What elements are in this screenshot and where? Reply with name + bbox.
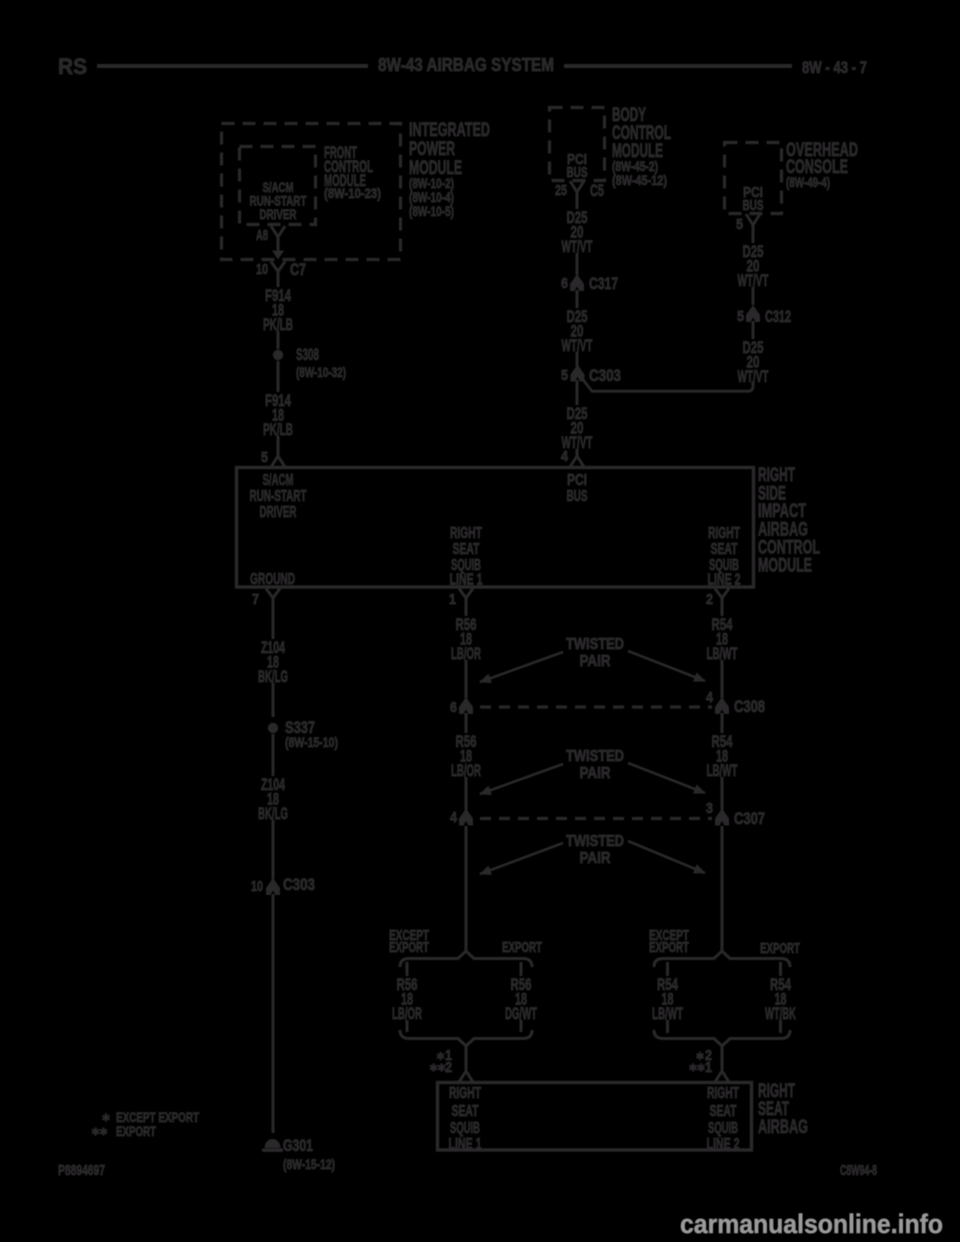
svg-text:7: 7: [252, 591, 259, 608]
svg-text:SEAT: SEAT: [711, 541, 738, 558]
svg-text:MODULE: MODULE: [758, 555, 812, 577]
svg-text:(8W-15-12): (8W-15-12): [283, 1156, 335, 1172]
svg-text:PAIR: PAIR: [580, 765, 611, 782]
svg-text:8W - 43 - 7: 8W - 43 - 7: [802, 58, 867, 77]
svg-text:5: 5: [561, 367, 568, 384]
svg-text:TWISTED: TWISTED: [566, 833, 624, 850]
svg-text:(8W-45-12): (8W-45-12): [612, 172, 667, 188]
svg-text:DRIVER: DRIVER: [260, 206, 297, 222]
svg-text:4: 4: [450, 809, 458, 826]
svg-text:3: 3: [706, 800, 713, 817]
svg-text:1: 1: [449, 591, 456, 608]
svg-text:4: 4: [706, 689, 714, 706]
svg-text:C307: C307: [734, 810, 765, 828]
svg-text:(8W-10-32): (8W-10-32): [296, 364, 346, 380]
svg-text:EXPORT: EXPORT: [116, 1123, 156, 1139]
svg-text:PAIR: PAIR: [580, 653, 611, 670]
svg-text:TWISTED: TWISTED: [566, 636, 624, 653]
svg-text:EXPORT: EXPORT: [389, 939, 429, 956]
svg-text:LINE 1: LINE 1: [450, 572, 483, 589]
svg-text:S/ACM: S/ACM: [263, 472, 294, 489]
svg-text:C308: C308: [734, 698, 765, 716]
svg-text:4: 4: [561, 448, 569, 465]
svg-text:C5: C5: [590, 182, 604, 200]
svg-text:10: 10: [251, 878, 263, 895]
svg-text:RUN-START: RUN-START: [250, 488, 307, 505]
svg-text:BUS: BUS: [567, 488, 588, 505]
svg-text:BUS: BUS: [567, 164, 588, 181]
svg-text:TWISTED: TWISTED: [566, 748, 624, 765]
svg-text:BUS: BUS: [743, 197, 764, 214]
svg-text:SEAT: SEAT: [710, 1103, 737, 1120]
svg-text:C303: C303: [589, 367, 621, 385]
svg-text:RIGHT: RIGHT: [708, 525, 740, 542]
svg-text:LINE 2: LINE 2: [707, 1136, 740, 1153]
svg-text:SEAT: SEAT: [453, 541, 480, 558]
svg-text:P8894697: P8894697: [58, 1162, 105, 1179]
svg-text:5: 5: [261, 449, 268, 466]
svg-text:GROUND: GROUND: [250, 571, 295, 588]
svg-text:A8: A8: [256, 227, 268, 244]
svg-text:C7: C7: [290, 261, 306, 279]
svg-text:6: 6: [561, 275, 568, 292]
svg-text:carmanualsonline.info: carmanualsonline.info: [680, 1209, 943, 1239]
svg-text:C303: C303: [283, 876, 315, 894]
svg-text:PCI: PCI: [567, 472, 587, 489]
svg-text:SQUIB: SQUIB: [450, 1120, 480, 1137]
svg-text:PAIR: PAIR: [580, 850, 611, 867]
svg-text:2: 2: [445, 1059, 452, 1076]
svg-text:(8W-49-4): (8W-49-4): [786, 174, 830, 190]
svg-text:RS: RS: [58, 54, 87, 79]
svg-text:LINE 2: LINE 2: [708, 572, 741, 589]
svg-text:C8W94-8: C8W94-8: [840, 1162, 877, 1179]
svg-text:10: 10: [256, 261, 268, 278]
svg-text:(8W-10-23): (8W-10-23): [324, 185, 381, 201]
svg-text:EXPORT: EXPORT: [760, 940, 800, 957]
svg-text:C312: C312: [765, 308, 791, 326]
svg-text:EXPORT: EXPORT: [502, 939, 542, 956]
svg-text:LINE 1: LINE 1: [449, 1136, 482, 1153]
svg-text:RIGHT: RIGHT: [707, 1085, 739, 1102]
svg-text:(8W-15-10): (8W-15-10): [285, 734, 338, 750]
svg-text:EXPORT: EXPORT: [649, 939, 689, 956]
svg-text:1: 1: [705, 1059, 712, 1076]
svg-text:5: 5: [736, 216, 743, 233]
svg-text:S308: S308: [296, 346, 319, 364]
svg-text:SEAT: SEAT: [452, 1103, 479, 1120]
svg-text:AIRBAG: AIRBAG: [758, 1116, 808, 1138]
svg-text:25: 25: [555, 182, 567, 199]
svg-text:5: 5: [737, 308, 744, 325]
svg-text:SQUIB: SQUIB: [708, 1120, 738, 1137]
svg-text:RIGHT: RIGHT: [449, 1085, 481, 1102]
svg-text:RIGHT: RIGHT: [450, 525, 482, 542]
svg-text:C317: C317: [589, 275, 618, 293]
svg-text:2: 2: [706, 591, 713, 608]
svg-text:DRIVER: DRIVER: [260, 504, 297, 521]
svg-text:8W-43 AIRBAG SYSTEM: 8W-43 AIRBAG SYSTEM: [378, 55, 554, 75]
svg-text:(8W-10-5): (8W-10-5): [409, 203, 454, 219]
svg-text:G301: G301: [283, 1137, 313, 1155]
svg-text:6: 6: [450, 699, 457, 716]
